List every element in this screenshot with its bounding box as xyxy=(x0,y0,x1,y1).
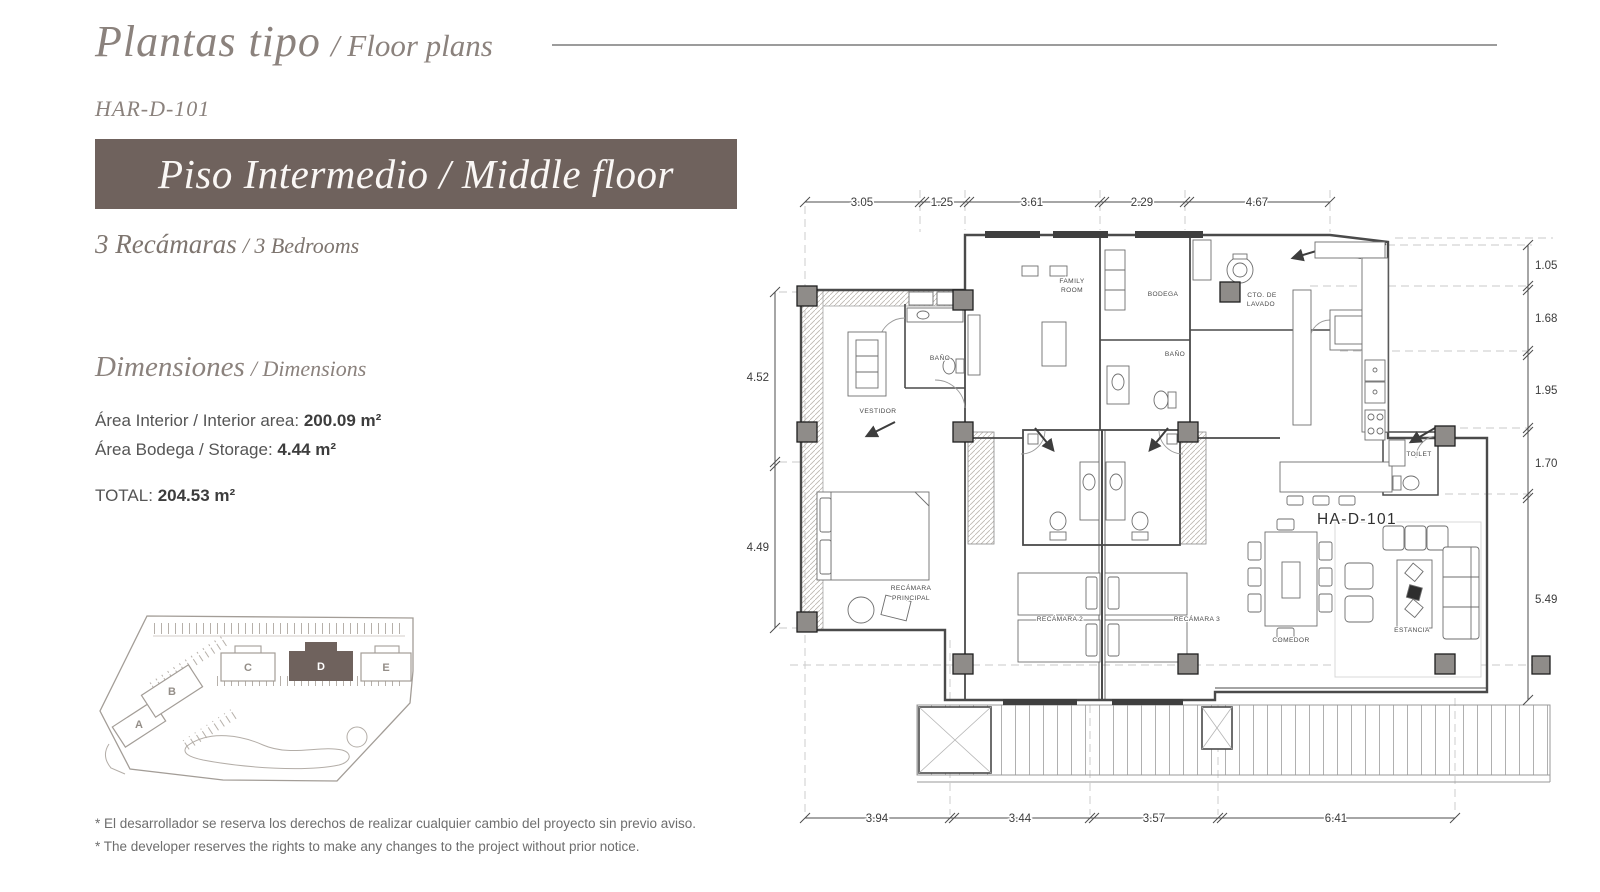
floor-banner-label: Piso Intermedio / Middle floor xyxy=(158,154,674,195)
room-label-cto-lavado-1: CTO. DE xyxy=(1247,292,1277,299)
storage-area-label: Área Bodega / Storage: xyxy=(95,440,273,459)
room-label-recamara-2: RECÁMARA 2 xyxy=(1037,614,1084,623)
storage-area-value: 4.44 m² xyxy=(277,440,336,459)
dim-left-1: 4.52 xyxy=(747,372,769,384)
interior-area-label: Área Interior / Interior area: xyxy=(95,411,299,430)
room-label-toilet: TOILET xyxy=(1406,451,1431,458)
room-label-bodega: BODEGA xyxy=(1148,291,1179,298)
room-label-family-room-2: ROOM xyxy=(1061,287,1083,294)
closet-island xyxy=(848,332,886,396)
total-area-line: TOTAL: 204.53 m² xyxy=(95,486,235,506)
dim-left-2: 4.49 xyxy=(747,542,769,554)
console xyxy=(968,315,980,375)
dim-right-4: 1.70 xyxy=(1535,458,1557,470)
bedrooms-en: / 3 Bedrooms xyxy=(243,233,360,258)
secondary-bath-fixtures xyxy=(1107,366,1176,409)
dim-top-5: 4.67 xyxy=(1246,197,1268,209)
master-chair xyxy=(848,597,874,623)
dim-top-3: 3.61 xyxy=(1021,197,1043,209)
room-label-bano-secondary: BAÑO xyxy=(1165,349,1185,358)
floor-plan: 3.05 1.25 3.61 2.29 4.67 3.94 3.44 3.57 … xyxy=(735,170,1575,850)
planter-box-mid xyxy=(1202,707,1232,749)
dim-right-3: 1.95 xyxy=(1535,385,1557,397)
dim-top-4: 2.29 xyxy=(1131,197,1153,209)
dim-right-5: 5.49 xyxy=(1535,594,1557,606)
page-title-es: Plantas tipo xyxy=(95,17,321,66)
dim-right-1: 1.05 xyxy=(1535,260,1557,272)
bedrooms-subtitle: 3 Recámaras/ 3 Bedrooms xyxy=(95,228,359,260)
kitchen xyxy=(1280,242,1392,505)
dimensions-heading-es: Dimensiones xyxy=(95,351,245,383)
building-label-d: D xyxy=(317,661,325,673)
room-label-bano-master: BAÑO xyxy=(930,353,950,362)
title-rule xyxy=(552,44,1497,46)
toilet-room-fixtures xyxy=(1389,440,1419,490)
laundry-cabinet xyxy=(1193,240,1211,280)
page-title-en: / Floor plans xyxy=(331,28,493,63)
total-area-label: TOTAL: xyxy=(95,486,153,505)
dim-bottom-4: 6.41 xyxy=(1325,813,1347,825)
floor-banner: Piso Intermedio / Middle floor xyxy=(95,139,737,209)
parking-row-top xyxy=(153,622,405,635)
room-label-recamara-3: RECÁMARA 3 xyxy=(1174,614,1221,623)
room-label-comedor: COMEDOR xyxy=(1272,637,1309,644)
dining-set xyxy=(1248,519,1332,639)
room-label-cto-lavado-2: LAVADO xyxy=(1247,301,1275,308)
living-set xyxy=(1335,522,1481,677)
footnote-en: * The developer reserves the rights to m… xyxy=(95,835,696,858)
dim-bottom-2: 3.44 xyxy=(1009,813,1032,825)
dim-top-2: 1.25 xyxy=(931,197,953,209)
washer xyxy=(1227,254,1253,283)
building-label-c: C xyxy=(244,662,252,674)
room-label-vestidor: VESTIDOR xyxy=(860,408,897,415)
page-title: Plantas tipo/ Floor plans xyxy=(95,16,493,69)
storage-area-line: Área Bodega / Storage: 4.44 m² xyxy=(95,435,381,464)
footnotes: * El desarrollador se reserva los derech… xyxy=(95,812,696,858)
dim-bottom-1: 3.94 xyxy=(866,813,889,825)
total-area-value: 204.53 m² xyxy=(158,486,236,505)
unit-code: HAR-D-101 xyxy=(95,98,210,120)
interior-area-line: Área Interior / Interior area: 200.09 m² xyxy=(95,406,381,435)
building-label-b: B xyxy=(168,686,176,698)
room-label-recamara-principal-2: PRINCIPAL xyxy=(892,595,930,602)
dimensions-heading: Dimensiones/ Dimensions xyxy=(95,350,366,385)
terrace-deck xyxy=(917,705,1550,782)
bodega-shelves xyxy=(1105,250,1125,310)
media-unit-2 xyxy=(1050,266,1067,276)
room-label-family-room-1: FAMILY xyxy=(1059,278,1085,285)
building-label-e: E xyxy=(382,662,389,674)
master-bed xyxy=(817,492,929,580)
planter-box-left xyxy=(919,707,991,773)
dimensions-heading-en: / Dimensions xyxy=(251,356,367,381)
family-table xyxy=(1042,322,1066,366)
room-label-estancia: ESTANCIA xyxy=(1394,627,1430,634)
kitchen-island xyxy=(1280,462,1392,492)
interior-area-value: 200.09 m² xyxy=(304,411,382,430)
dim-right-2: 1.68 xyxy=(1535,313,1557,325)
footnote-es: * El desarrollador se reserva los derech… xyxy=(95,812,696,835)
room-label-recamara-principal-1: RECÁMARA xyxy=(891,583,932,592)
area-summary: Área Interior / Interior area: 200.09 m²… xyxy=(95,406,381,464)
site-map: A B C D E xyxy=(95,596,430,796)
plan-code-label: HA-D-101 xyxy=(1317,511,1397,528)
bedrooms-es: 3 Recámaras xyxy=(95,229,237,259)
dim-top-1: 3.05 xyxy=(851,197,873,209)
media-unit-1 xyxy=(1022,266,1038,276)
dim-bottom-3: 3.57 xyxy=(1143,813,1165,825)
building-label-a: A xyxy=(135,719,143,731)
